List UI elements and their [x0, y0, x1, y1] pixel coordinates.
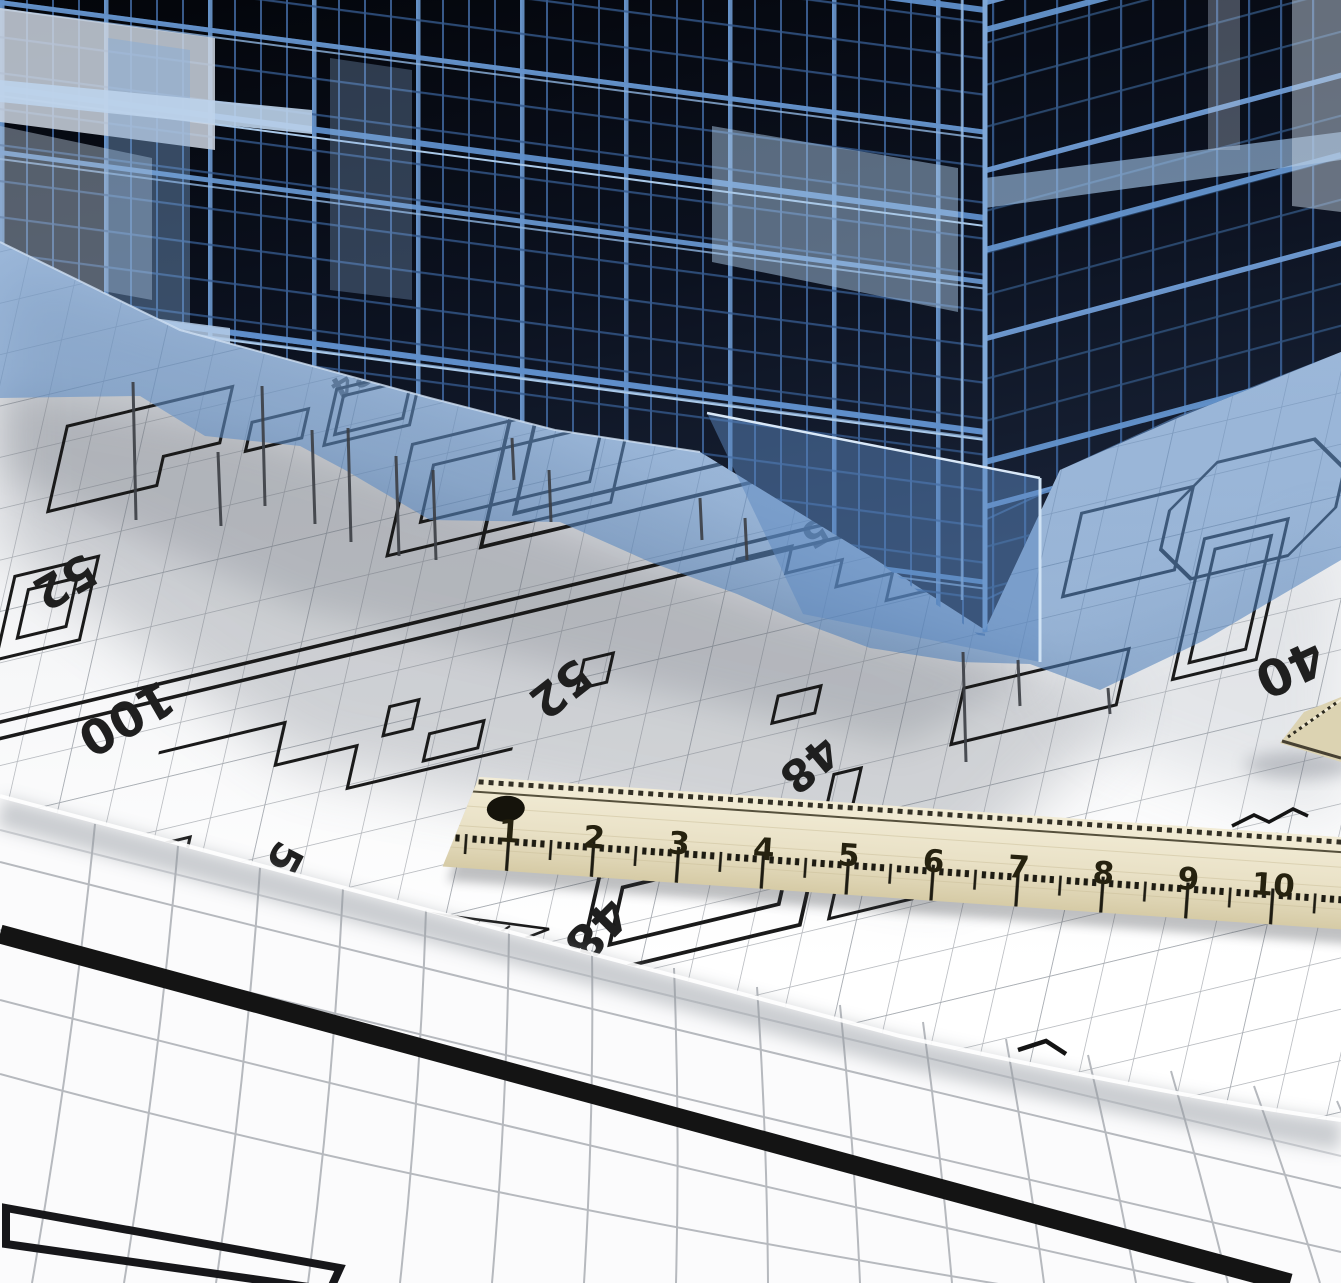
ruler-number-4: 4	[752, 831, 776, 868]
ruler-number-9: 9	[1176, 861, 1200, 898]
ruler-number-7: 7	[1007, 849, 1031, 886]
ruler-number-10: 10	[1250, 866, 1296, 905]
ruler-number-3: 3	[667, 825, 691, 862]
ruler-number-6: 6	[922, 843, 946, 880]
scene: 52 100 52 48 48 5 40 40 25 34	[0, 0, 1341, 1283]
ruler-number-5: 5	[837, 837, 861, 874]
ruler-number-8: 8	[1091, 855, 1115, 892]
ruler-number-1: 1	[497, 813, 521, 850]
ruler-number-2: 2	[582, 819, 606, 856]
